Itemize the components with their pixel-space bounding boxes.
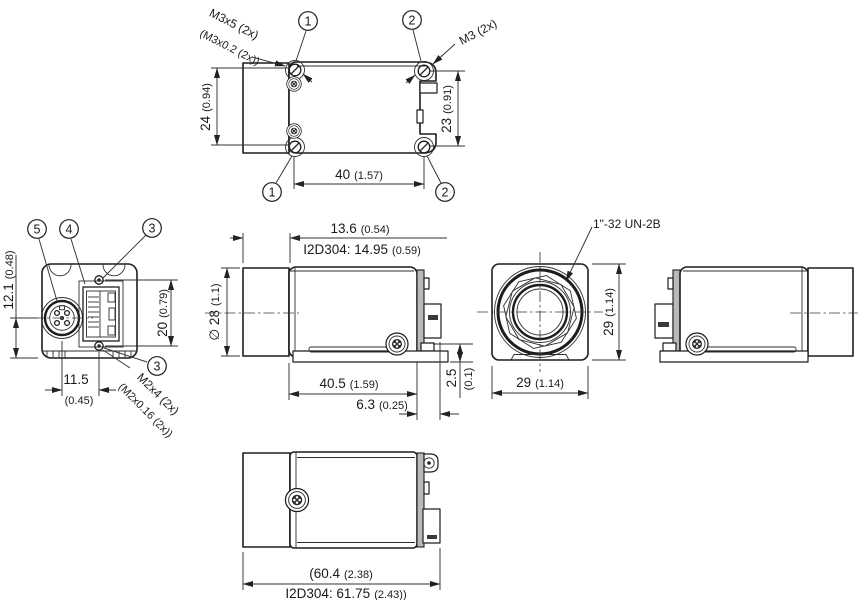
mounting-foot <box>293 351 448 362</box>
lens-barrel-side <box>243 268 289 356</box>
label-m3: M3 (2x) <box>457 16 499 47</box>
dim-text-6-3: 6.3(0.25) <box>356 397 408 412</box>
side-notch <box>417 110 423 123</box>
rear-plate <box>673 270 680 354</box>
dim-text-12-1: 12.1(0.48) <box>1 250 16 309</box>
callout-1-number: 1 <box>269 186 276 200</box>
torx-screw-icon <box>287 77 302 92</box>
torx-screw-icon <box>285 488 308 511</box>
dim-text-0-45: (0.45) <box>65 395 94 407</box>
dim-text-40-5: 40.5(1.59) <box>319 376 378 391</box>
dim-text-i2d304-14-95: I2D304: 14.95(0.59) <box>303 242 421 257</box>
callout-5: 5 <box>28 220 47 239</box>
callout-1-number: 1 <box>305 15 312 29</box>
lens-barrel-side <box>808 268 853 356</box>
mount-tab <box>424 454 438 472</box>
io-connector-block <box>424 304 441 338</box>
dim-text-2-5: 2.5 <box>444 369 459 388</box>
dim-text-0-1: (0.1) <box>463 368 475 391</box>
callout-3-number: 3 <box>154 360 161 374</box>
rear-plate <box>417 270 424 354</box>
dim-text-13-6: 13.6(0.54) <box>330 221 389 236</box>
io-connector-block <box>655 304 673 338</box>
torx-screw-icon <box>386 333 408 355</box>
dim-width-40: 40(1.57) <box>294 157 424 189</box>
callout-3: 3 <box>148 357 167 376</box>
mounting-foot <box>660 351 808 362</box>
callout-5-number: 5 <box>34 223 41 237</box>
callout-2: 2 <box>436 183 455 202</box>
dim-barrel-diameter-28: ∅ 28(1.1) <box>207 268 240 356</box>
callout-3: 3 <box>143 219 162 238</box>
torx-screw-icon <box>686 333 708 355</box>
camera-dimension-drawing: 24(0.94) 23(0.91) 40(1.57) M3x5 (2x) (M3… <box>0 0 858 600</box>
callout-1: 1 <box>263 183 282 202</box>
rear-view: 12.1(0.48) 20(0.79) 11.5 (0.45) M2x4 (2x… <box>1 219 182 441</box>
callout-2-number: 2 <box>409 14 416 28</box>
lens-barrel-top <box>243 63 289 153</box>
plate-tab <box>424 482 429 494</box>
dim-text-29-height: 29(1.14) <box>601 288 616 336</box>
plate-tab <box>668 278 673 289</box>
top-view: 24(0.94) 23(0.91) 40(1.57) M3x5 (2x) (M3… <box>198 6 500 202</box>
connector-step <box>421 343 434 351</box>
callout-4-number: 4 <box>66 223 73 237</box>
bottom-view: (60.4(2.38) I2D304: 61.75(2.43)) <box>243 452 440 600</box>
side-view-right <box>655 267 858 362</box>
dim-connector-center-12-1: 12.1(0.48) <box>1 250 38 358</box>
dim-text-dia-28: ∅ 28(1.1) <box>207 283 222 340</box>
side-view-left: 13.6(0.54) I2D304: 14.95(0.59) ∅ 28(1.1)… <box>205 221 475 420</box>
callout-1: 1 <box>299 12 318 31</box>
connector-step <box>663 343 676 351</box>
dim-total-length: (60.4(2.38) I2D304: 61.75(2.43)) <box>243 548 440 600</box>
plate-tab <box>424 278 429 289</box>
label-lens-thread: 1"-32 UN-2B <box>593 217 661 231</box>
torx-screw-icon <box>287 124 302 139</box>
dim-text-i2d304-61-75: I2D304: 61.75(2.43)) <box>285 586 406 600</box>
callout-2: 2 <box>403 11 422 30</box>
callout-4: 4 <box>60 220 79 239</box>
side-step <box>420 83 437 93</box>
technical-drawing-page: 24(0.94) 23(0.91) 40(1.57) M3x5 (2x) (M3… <box>0 0 858 600</box>
dim-text-11-5: 11.5 <box>63 372 88 387</box>
dim-text-60-4: (60.4(2.38) <box>309 566 373 581</box>
front-view: 1"-32 UN-2B 29(1.14) 29(1.14) <box>477 217 661 399</box>
dim-text-29-width: 29(1.14) <box>516 375 564 390</box>
callout-3-number: 3 <box>149 222 156 236</box>
dim-lens-protrusion: 13.6(0.54) I2D304: 14.95(0.59) <box>230 221 447 263</box>
lens-barrel-bottom <box>243 453 290 547</box>
dim-text-23: 23(0.91) <box>439 85 454 133</box>
dim-text-20: 20(0.79) <box>155 289 170 337</box>
callout-2-number: 2 <box>442 186 449 200</box>
dim-text-40: 40(1.57) <box>335 167 383 182</box>
dim-text-24: 24(0.94) <box>198 83 213 131</box>
